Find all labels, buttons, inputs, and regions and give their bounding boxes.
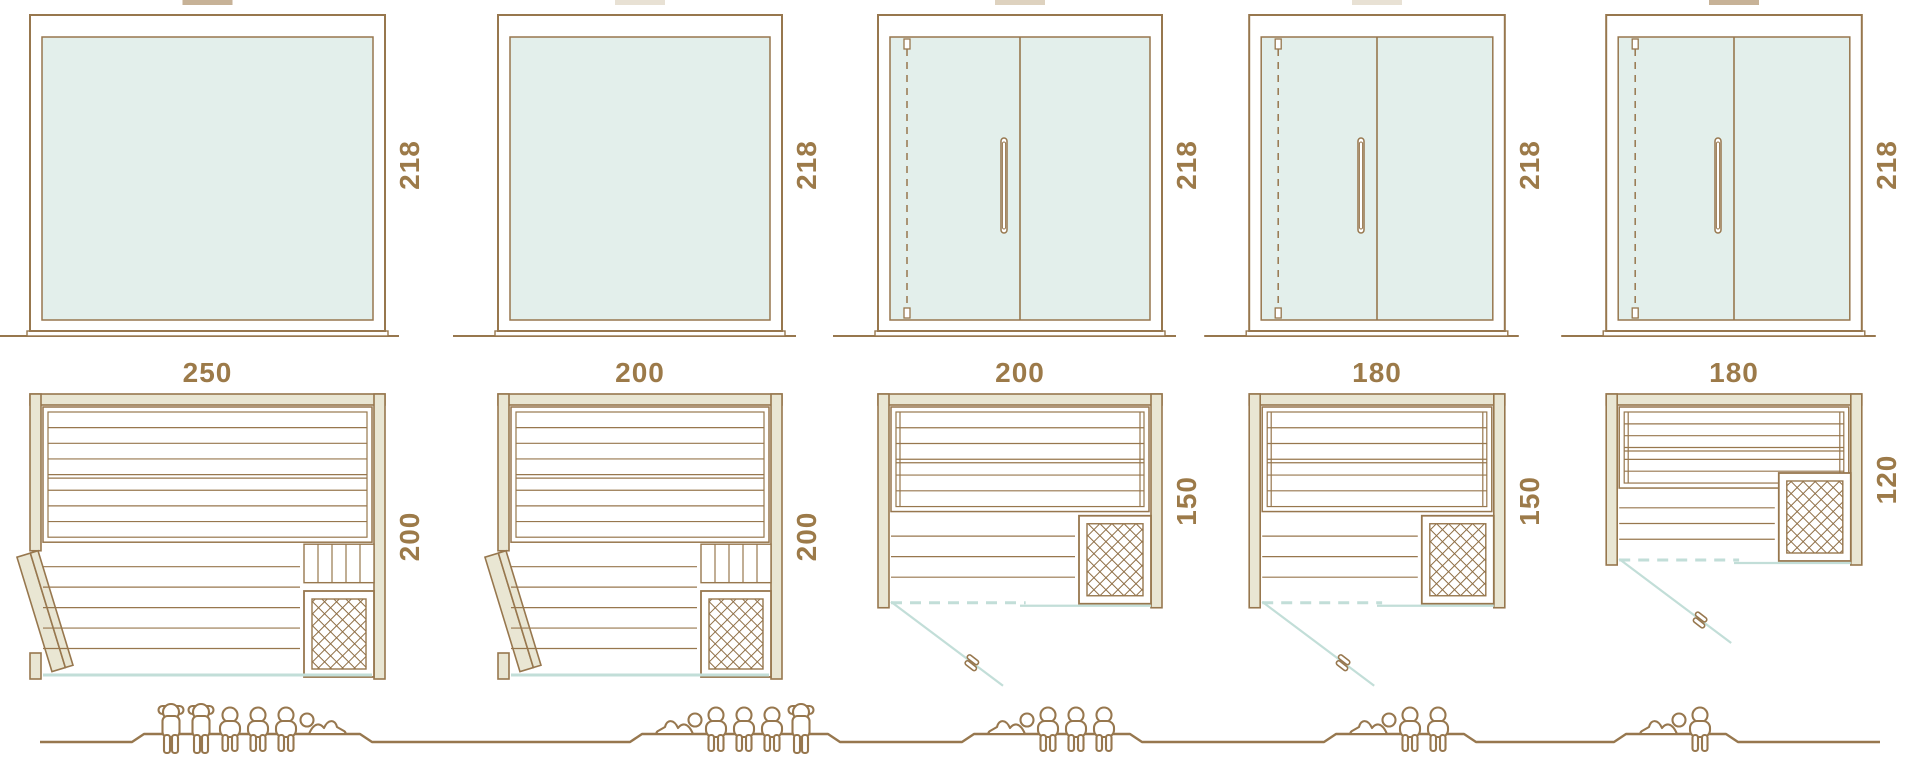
head xyxy=(1383,714,1396,727)
hinge-stop-top xyxy=(1275,39,1281,49)
model-5: 180218120 xyxy=(1561,0,1902,643)
person-sitting xyxy=(1066,708,1086,752)
leg xyxy=(746,735,752,751)
leg xyxy=(802,735,808,753)
door-jamb-stub xyxy=(30,653,41,679)
model-3: 200218150 xyxy=(833,0,1202,686)
head xyxy=(689,714,702,727)
height-dimension-label: 218 xyxy=(1171,140,1202,190)
leg xyxy=(1702,735,1708,751)
capacity-figures-model-1 xyxy=(159,704,346,753)
torso xyxy=(793,716,810,737)
person-sitting xyxy=(1428,708,1448,752)
wall-back xyxy=(1606,394,1862,405)
front-elevation: 180218 xyxy=(1561,15,1902,388)
capacity-figures-model-2 xyxy=(657,704,814,753)
plan-door-leaf xyxy=(485,551,541,672)
body xyxy=(1641,721,1678,734)
floor-plan: 120 xyxy=(1606,394,1902,643)
ground-line xyxy=(40,734,1880,742)
wall-back xyxy=(1249,394,1505,405)
body xyxy=(1351,721,1388,734)
door-swing-line xyxy=(1619,559,1731,643)
leg xyxy=(223,735,229,751)
person-sitting xyxy=(220,708,240,752)
hinge-stop-bottom xyxy=(1632,308,1638,318)
leg xyxy=(1412,735,1418,751)
head xyxy=(301,714,314,727)
leg xyxy=(794,735,800,753)
door-swing-line xyxy=(1262,602,1374,686)
leg xyxy=(1403,735,1409,751)
front-elevation: 200218 xyxy=(833,15,1202,388)
wall-right xyxy=(1494,394,1505,608)
width-dimension-label: 180 xyxy=(1352,357,1402,388)
depth-dimension-label: 200 xyxy=(791,512,822,562)
wall-left xyxy=(1249,394,1260,608)
person-lying xyxy=(989,714,1034,735)
model-4: 180218150 xyxy=(1204,0,1545,686)
leg xyxy=(1106,735,1112,751)
head xyxy=(1021,714,1034,727)
heater-lattice xyxy=(1087,524,1143,596)
wall-right xyxy=(374,394,385,679)
leg xyxy=(1069,735,1075,751)
wall-back xyxy=(30,394,385,405)
leg xyxy=(288,735,294,751)
height-dimension-label: 218 xyxy=(394,140,425,190)
leg xyxy=(765,735,771,751)
width-dimension-label: 200 xyxy=(995,357,1045,388)
vertical-slat-box xyxy=(701,544,771,582)
capacity-figures-model-4 xyxy=(1351,708,1449,752)
body xyxy=(657,721,694,734)
door-swing-line xyxy=(891,602,1003,686)
floor-plan: 200 xyxy=(485,394,822,679)
top-crop-fragment xyxy=(995,0,1045,5)
leg xyxy=(279,735,285,751)
glass-panel xyxy=(510,37,770,320)
leg xyxy=(260,735,266,751)
leg xyxy=(709,735,715,751)
hinge-stop-top xyxy=(1632,39,1638,49)
leg xyxy=(1050,735,1056,751)
leg xyxy=(718,735,724,751)
heater-lattice xyxy=(1787,481,1843,553)
body xyxy=(309,721,346,734)
person-standing xyxy=(159,704,184,753)
wall-right xyxy=(1151,394,1162,608)
torso xyxy=(193,716,210,737)
wall-left xyxy=(498,394,509,551)
leg xyxy=(737,735,743,751)
heater xyxy=(304,591,374,677)
person-sitting xyxy=(1400,708,1420,752)
plan-door-leaf xyxy=(17,551,73,672)
wall-left xyxy=(30,394,41,551)
leg xyxy=(1078,735,1084,751)
depth-dimension-label: 120 xyxy=(1871,455,1902,505)
torso xyxy=(163,716,180,737)
leg xyxy=(202,735,208,753)
sauna-size-diagram: 2502182002002182002002181501802181501802… xyxy=(0,0,1920,770)
heater xyxy=(1422,516,1494,604)
heater xyxy=(1079,516,1151,604)
leg xyxy=(1440,735,1446,751)
leg xyxy=(774,735,780,751)
depth-dimension-label: 150 xyxy=(1514,476,1545,526)
wall-right xyxy=(771,394,782,679)
wall-left xyxy=(1606,394,1617,565)
top-crop-fragment xyxy=(1709,0,1759,5)
person-sitting xyxy=(762,708,782,752)
person-lying xyxy=(657,714,702,735)
leg xyxy=(1041,735,1047,751)
person-sitting xyxy=(734,708,754,752)
model-1: 250218200 xyxy=(0,0,425,679)
person-standing xyxy=(789,704,814,753)
person-lying xyxy=(1641,714,1686,735)
person-sitting xyxy=(276,708,296,752)
person-standing xyxy=(189,704,214,753)
heater xyxy=(1779,473,1851,561)
heater-lattice xyxy=(1430,524,1486,596)
person-lying xyxy=(1351,714,1396,735)
depth-dimension-label: 200 xyxy=(394,512,425,562)
floor-plan: 150 xyxy=(878,394,1202,686)
front-elevation: 200218 xyxy=(453,15,822,388)
capacity-figures-model-3 xyxy=(989,708,1115,752)
body xyxy=(989,721,1026,734)
floor-plan: 200 xyxy=(17,394,425,679)
door-jamb-stub xyxy=(498,653,509,679)
heater-lattice xyxy=(709,599,763,669)
wall-right xyxy=(1851,394,1862,565)
sauna-models-drawing: 2502182002002182002002181501802181501802… xyxy=(0,0,1920,770)
leg xyxy=(1097,735,1103,751)
leg xyxy=(1693,735,1699,751)
hinge-stop-top xyxy=(904,39,910,49)
leg xyxy=(251,735,257,751)
person-sitting xyxy=(1690,708,1710,752)
depth-dimension-label: 150 xyxy=(1171,476,1202,526)
leg xyxy=(1431,735,1437,751)
person-sitting xyxy=(706,708,726,752)
front-elevation: 250218 xyxy=(0,15,425,388)
vertical-slat-box xyxy=(304,544,374,582)
width-dimension-label: 180 xyxy=(1709,357,1759,388)
model-2: 200218200 xyxy=(453,0,822,679)
top-crop-fragment xyxy=(615,0,665,5)
leg xyxy=(232,735,238,751)
width-dimension-label: 200 xyxy=(615,357,665,388)
height-dimension-label: 218 xyxy=(1514,140,1545,190)
height-dimension-label: 218 xyxy=(1871,140,1902,190)
floor-plan: 150 xyxy=(1249,394,1545,686)
person-lying xyxy=(301,714,346,735)
heater xyxy=(701,591,771,677)
front-elevation: 180218 xyxy=(1204,15,1545,388)
person-sitting xyxy=(1038,708,1058,752)
heater-lattice xyxy=(312,599,366,669)
leg xyxy=(194,735,200,753)
wall-back xyxy=(878,394,1162,405)
person-sitting xyxy=(248,708,268,752)
leg xyxy=(164,735,170,753)
hinge-stop-bottom xyxy=(904,308,910,318)
wall-left xyxy=(878,394,889,608)
head xyxy=(1673,714,1686,727)
top-crop-fragment xyxy=(1352,0,1402,5)
leg xyxy=(172,735,178,753)
wall-back xyxy=(498,394,782,405)
height-dimension-label: 218 xyxy=(791,140,822,190)
top-crop-fragment xyxy=(183,0,233,5)
width-dimension-label: 250 xyxy=(183,357,233,388)
glass-panel xyxy=(42,37,373,320)
capacity-figures-model-5 xyxy=(1641,708,1711,752)
hinge-stop-bottom xyxy=(1275,308,1281,318)
person-sitting xyxy=(1094,708,1114,752)
